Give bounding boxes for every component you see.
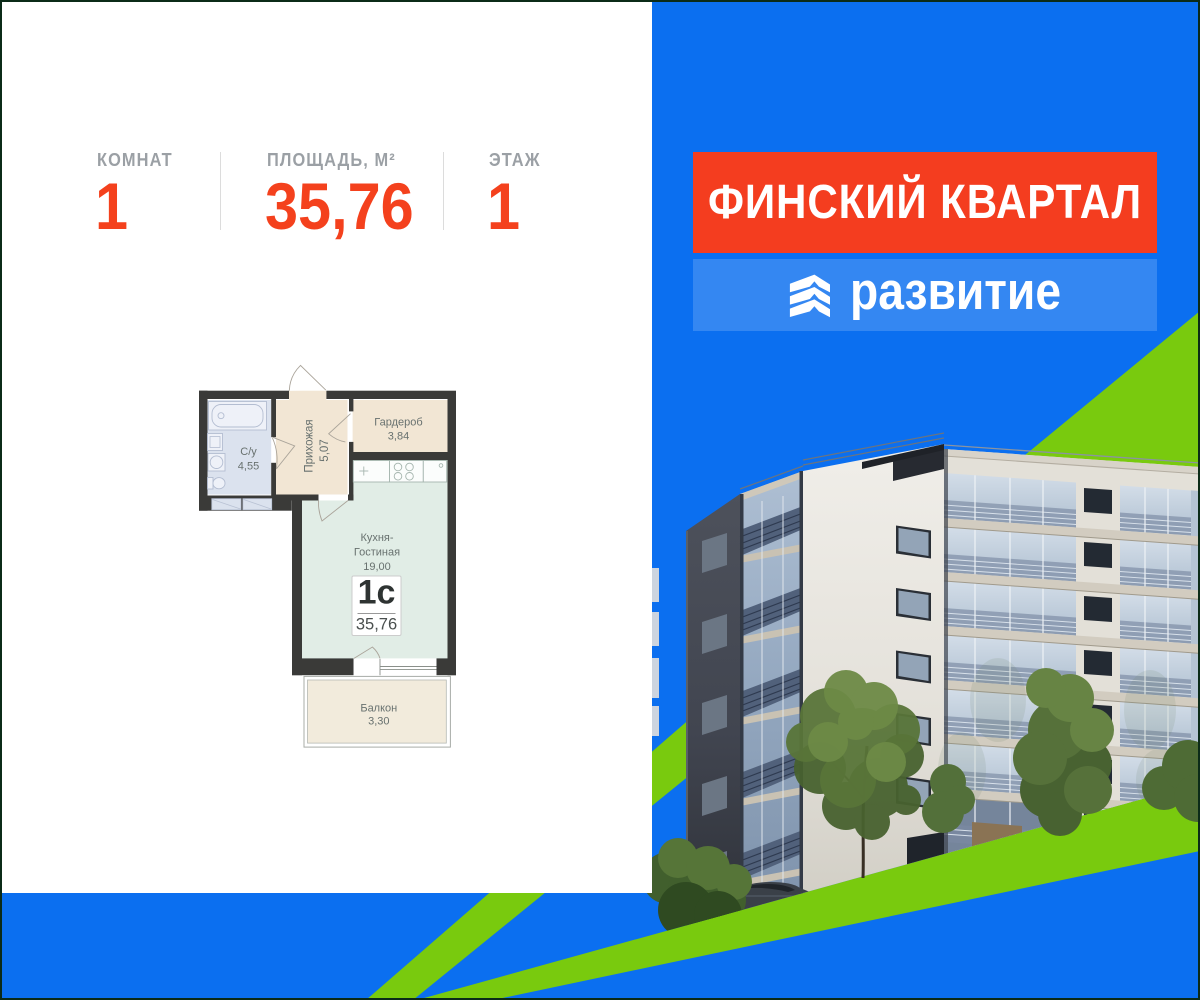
svg-text:1с: 1с	[358, 574, 396, 612]
svg-text:Гостиная: Гостиная	[354, 547, 400, 559]
svg-text:Гардероб: Гардероб	[374, 417, 422, 429]
svg-text:3,30: 3,30	[368, 716, 389, 728]
svg-text:3,84: 3,84	[388, 431, 409, 443]
svg-text:35,76: 35,76	[356, 616, 397, 634]
svg-text:Кухня-: Кухня-	[360, 532, 393, 544]
svg-text:19,00: 19,00	[363, 561, 391, 573]
svg-text:Балкон: Балкон	[360, 703, 397, 715]
svg-text:С/у: С/у	[240, 446, 257, 458]
svg-text:Прихожая: Прихожая	[304, 419, 316, 472]
svg-text:5,07: 5,07	[319, 439, 331, 461]
svg-text:4,55: 4,55	[238, 461, 259, 473]
